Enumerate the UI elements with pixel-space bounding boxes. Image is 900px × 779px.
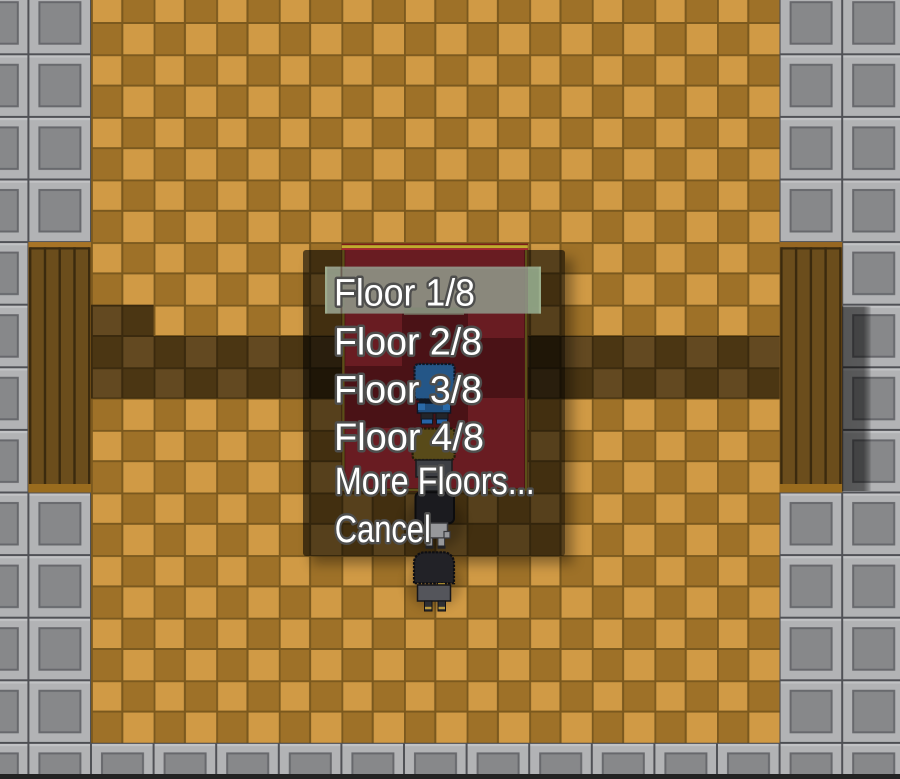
svg-text:Floor 2/8: Floor 2/8 <box>334 322 482 364</box>
svg-text:Cancel: Cancel <box>335 509 431 551</box>
svg-text:Floor 1/8: Floor 1/8 <box>334 273 475 315</box>
svg-text:More Floors...: More Floors... <box>335 461 535 503</box>
svg-text:Floor 4/8: Floor 4/8 <box>334 417 484 459</box>
svg-text:Floor 3/8: Floor 3/8 <box>334 370 482 412</box>
